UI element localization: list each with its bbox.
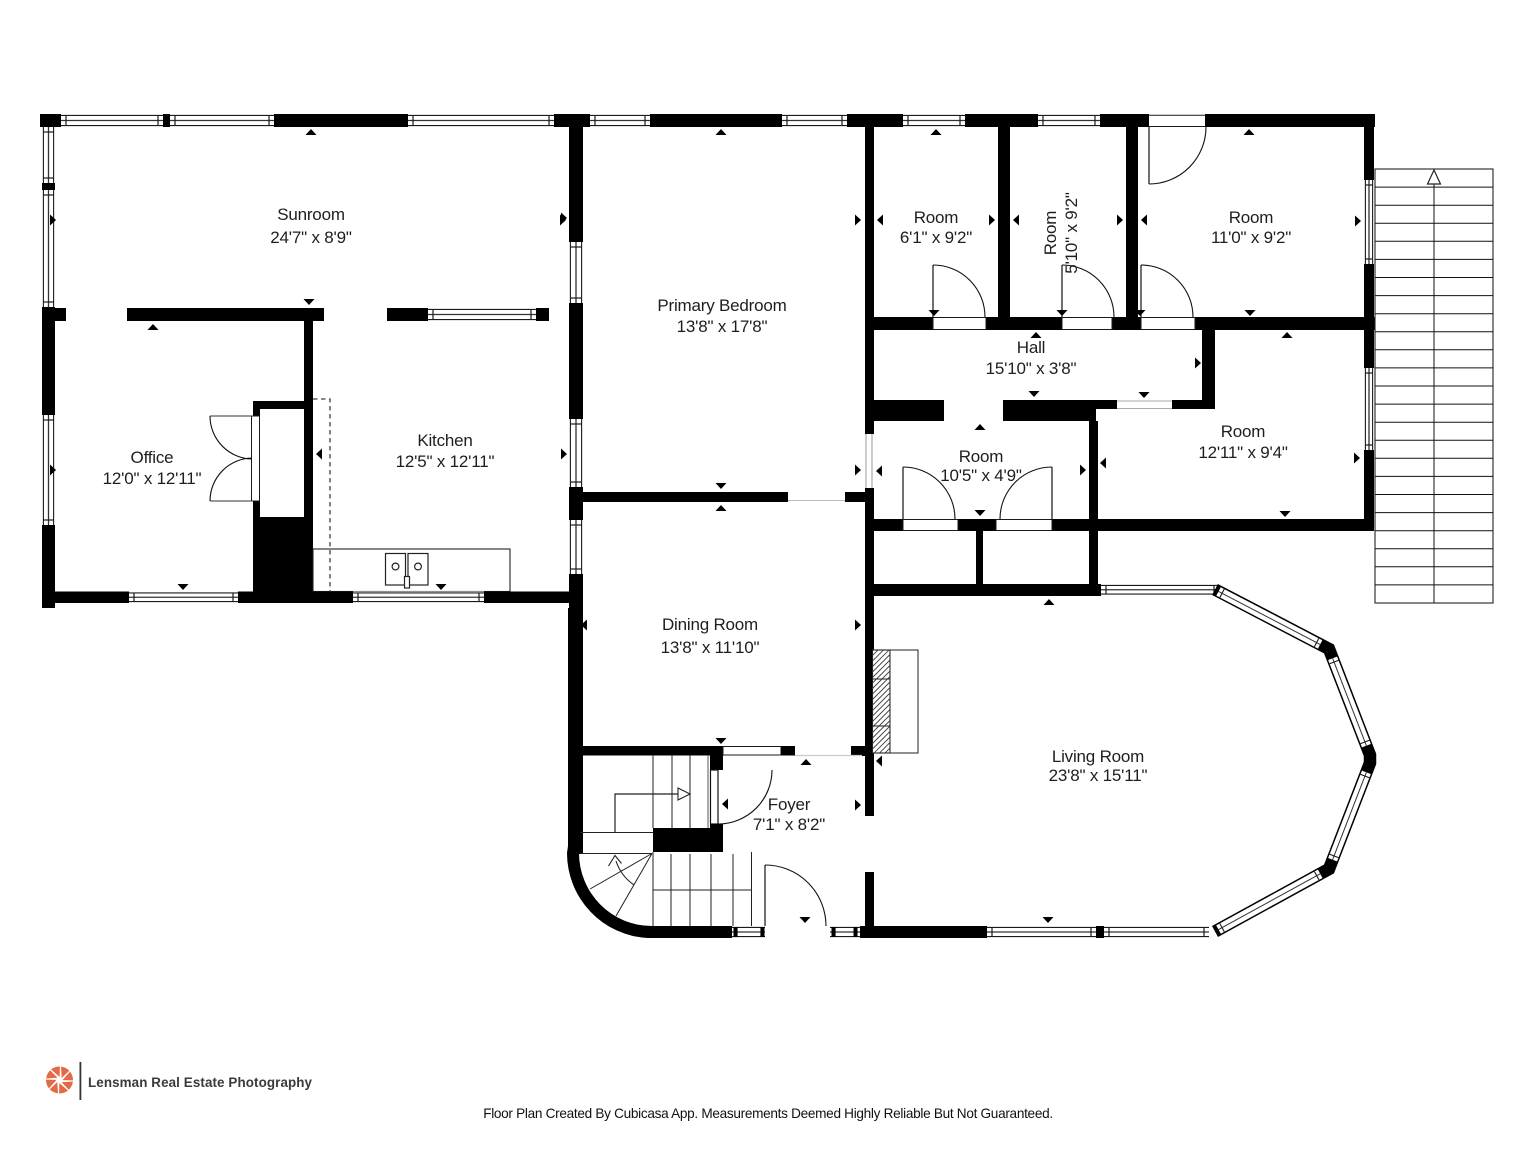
svg-text:Room: Room: [959, 447, 1004, 466]
svg-text:Lensman Real Estate Photograph: Lensman Real Estate Photography: [88, 1075, 313, 1090]
svg-text:Floor Plan Created By Cubicasa: Floor Plan Created By Cubicasa App. Meas…: [483, 1106, 1053, 1121]
svg-text:Foyer: Foyer: [768, 795, 811, 814]
svg-text:5'10" x 9'2": 5'10" x 9'2": [1062, 192, 1081, 274]
svg-text:Room: Room: [1229, 208, 1274, 227]
svg-text:23'8" x 15'11": 23'8" x 15'11": [1049, 766, 1148, 785]
svg-text:Primary Bedroom: Primary Bedroom: [657, 296, 786, 315]
svg-text:15'10" x 3'8": 15'10" x 3'8": [986, 359, 1077, 378]
svg-text:13'8" x 17'8": 13'8" x 17'8": [677, 317, 768, 336]
svg-text:12'0" x 12'11": 12'0" x 12'11": [103, 469, 202, 488]
svg-text:11'0" x 9'2": 11'0" x 9'2": [1211, 228, 1291, 247]
svg-text:12'11" x 9'4": 12'11" x 9'4": [1198, 443, 1288, 462]
svg-text:Kitchen: Kitchen: [417, 431, 472, 450]
svg-text:Room: Room: [1221, 422, 1266, 441]
svg-text:Dining Room: Dining Room: [662, 615, 758, 634]
svg-text:12'5" x 12'11": 12'5" x 12'11": [396, 452, 495, 471]
svg-text:Room: Room: [914, 208, 959, 227]
svg-text:Living Room: Living Room: [1052, 747, 1144, 766]
svg-text:24'7" x 8'9": 24'7" x 8'9": [270, 228, 352, 247]
svg-text:13'8" x 11'10": 13'8" x 11'10": [661, 638, 760, 657]
svg-text:Sunroom: Sunroom: [277, 205, 345, 224]
svg-text:7'1" x 8'2": 7'1" x 8'2": [753, 815, 825, 834]
svg-text:Office: Office: [131, 448, 174, 467]
svg-text:6'1" x 9'2": 6'1" x 9'2": [900, 228, 972, 247]
svg-text:Hall: Hall: [1017, 338, 1046, 357]
svg-text:Room: Room: [1041, 211, 1060, 256]
svg-text:10'5" x 4'9": 10'5" x 4'9": [940, 466, 1022, 485]
